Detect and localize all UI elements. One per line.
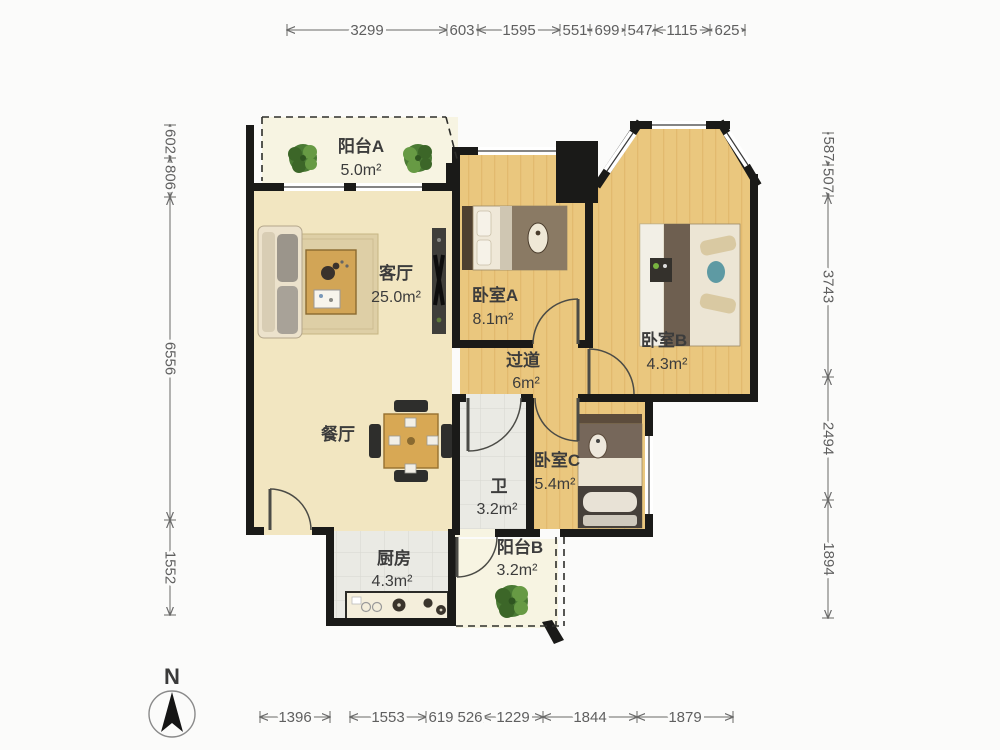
dim-top-0: 3299 (350, 22, 383, 39)
room-area-bedroom-a: 8.1m² (473, 311, 515, 328)
dim-top-1: 603 (449, 22, 474, 39)
dim-left-1: 806 (162, 165, 179, 190)
stove-counter (346, 592, 448, 620)
dimensions-top: 3299 603 1595 551 699 547 1115 625 (287, 22, 745, 39)
room-name-dining: 餐厅 (321, 424, 355, 444)
dim-bottom-5: 1844 (573, 709, 606, 726)
dimensions-left: 602 806 6556 1552 (162, 125, 179, 615)
room-area-living: 25.0m² (371, 289, 421, 306)
bed-c (578, 414, 642, 528)
tv-console (432, 228, 446, 334)
sofa (258, 226, 302, 338)
dim-right-1: 507 (820, 168, 837, 193)
room-area-hallway: 6m² (512, 375, 540, 392)
dim-top-7: 625 (714, 22, 739, 39)
room-name-balcony-a: 阳台A (338, 136, 384, 156)
plant-icon (495, 585, 528, 618)
floor-plan-page: 阳台A 5.0m² 客厅 25.0m² 餐厅 卧室A 8.1m² 卧室B 4.3… (0, 0, 1000, 750)
dim-bottom-3: 526 (457, 709, 482, 726)
dimensions-right: 587 507 3743 2494 1894 (820, 133, 838, 618)
floor-plan: 阳台A 5.0m² 客厅 25.0m² 餐厅 卧室A 8.1m² 卧室B 4.3… (0, 0, 1000, 750)
dim-top-4: 699 (594, 22, 619, 39)
dim-right-2: 3743 (820, 270, 837, 303)
dim-top-6: 1115 (666, 22, 697, 39)
dim-right-0: 587 (820, 136, 837, 161)
dim-bottom-4: 1229 (496, 709, 529, 726)
dim-bottom-2: 619 (428, 709, 453, 726)
room-area-balcony-a: 5.0m² (341, 162, 383, 179)
room-name-bathroom: 卫 (491, 477, 508, 496)
bed-a (462, 206, 567, 270)
coffee-table (306, 250, 356, 314)
room-area-kitchen: 4.3m² (372, 573, 414, 590)
dim-bottom-1: 1553 (371, 709, 404, 726)
room-name-bedroom-a: 卧室A (472, 285, 518, 305)
dim-top-3: 551 (562, 22, 587, 39)
room-name-kitchen: 厨房 (377, 548, 411, 568)
room-area-bedroom-c: 5.4m² (535, 476, 577, 493)
room-area-bathroom: 3.2m² (477, 501, 519, 518)
dim-bottom-0: 1396 (278, 709, 311, 726)
dim-bottom-6: 1879 (668, 709, 701, 726)
room-area-balcony-b: 3.2m² (497, 562, 539, 579)
dimensions-bottom: 1396 1553 619 526 1229 1844 1879 (260, 709, 733, 726)
dim-left-2: 6556 (162, 342, 179, 375)
room-area-bedroom-b: 4.3m² (647, 356, 689, 373)
north-label: N (164, 664, 180, 689)
dim-top-2: 1595 (502, 22, 535, 39)
north-indicator: N (149, 664, 195, 737)
room-name-bedroom-c: 卧室C (534, 450, 580, 470)
dim-top-5: 547 (627, 22, 652, 39)
room-name-living: 客厅 (378, 263, 413, 283)
bed-b (640, 224, 740, 346)
room-name-hallway: 过道 (506, 350, 540, 370)
dim-right-4: 1894 (820, 542, 837, 575)
dim-left-0: 602 (162, 129, 179, 154)
dim-left-3: 1552 (162, 551, 179, 584)
room-name-balcony-b: 阳台B (497, 537, 543, 557)
dim-right-3: 2494 (820, 422, 837, 455)
room-name-bedroom-b: 卧室B (641, 330, 687, 350)
